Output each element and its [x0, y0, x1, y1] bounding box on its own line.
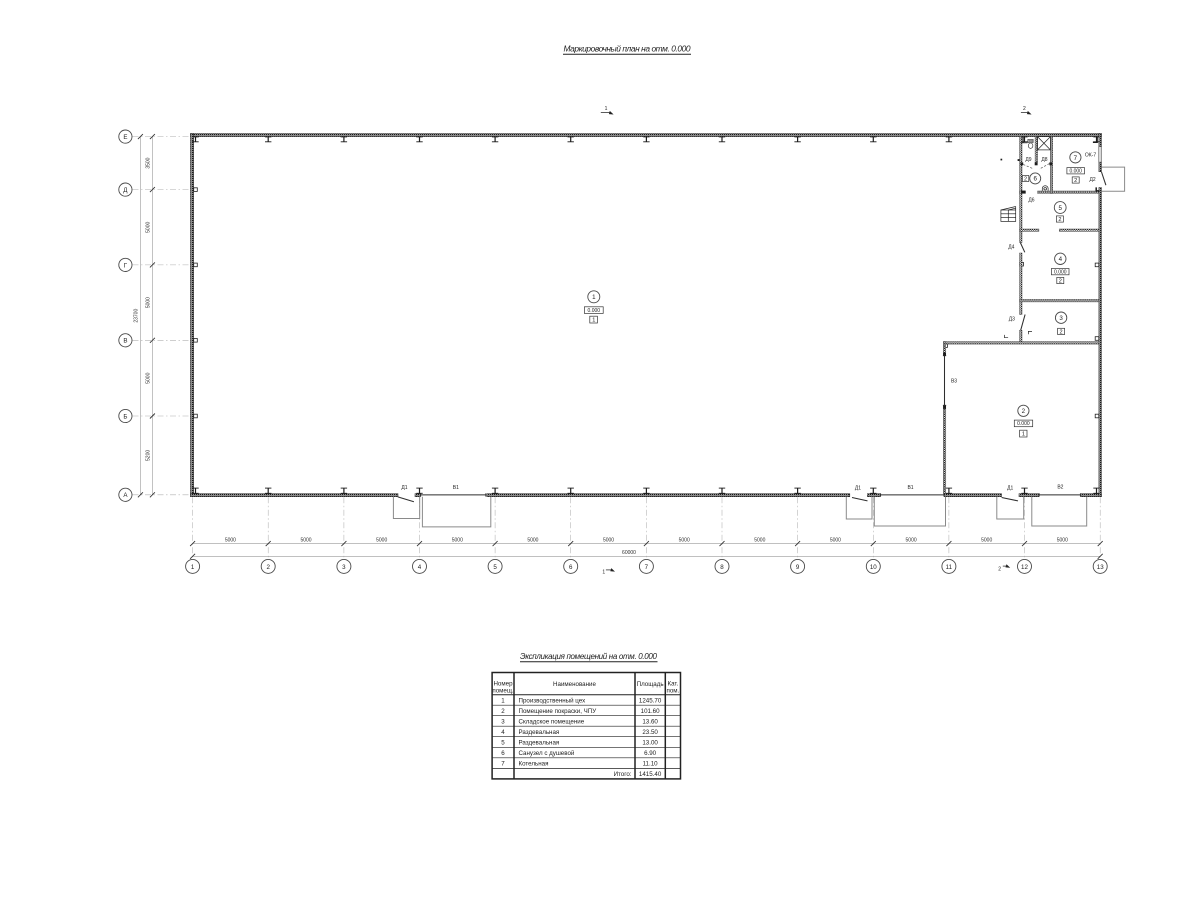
svg-text:2: 2	[1060, 329, 1063, 335]
svg-text:5000: 5000	[225, 537, 236, 543]
svg-text:7: 7	[1074, 155, 1078, 162]
svg-text:В1: В1	[453, 485, 459, 491]
svg-text:В1: В1	[907, 485, 913, 491]
svg-text:Номер: Номер	[493, 680, 513, 687]
svg-text:2: 2	[1058, 217, 1061, 223]
svg-text:101.60: 101.60	[641, 708, 660, 715]
svg-text:Помещение покраски, ЧПУ: Помещение покраски, ЧПУ	[519, 708, 597, 715]
svg-text:5200: 5200	[146, 450, 152, 461]
svg-text:Площадь: Площадь	[637, 681, 664, 688]
svg-text:5000: 5000	[603, 537, 614, 543]
svg-text:0.000: 0.000	[1054, 269, 1067, 275]
svg-text:2: 2	[1059, 278, 1062, 284]
svg-text:13.60: 13.60	[642, 718, 658, 725]
svg-text:8: 8	[720, 564, 724, 571]
svg-text:6: 6	[501, 750, 505, 757]
svg-text:1: 1	[592, 318, 595, 324]
svg-text:10: 10	[870, 564, 877, 571]
svg-text:2: 2	[998, 566, 1001, 572]
svg-text:5000: 5000	[452, 537, 463, 543]
svg-text:23700: 23700	[134, 309, 140, 323]
svg-text:помещ.: помещ.	[492, 687, 514, 694]
svg-text:1: 1	[501, 697, 505, 704]
svg-text:23.50: 23.50	[642, 729, 658, 736]
svg-text:11.10: 11.10	[643, 761, 659, 768]
svg-text:1245.70: 1245.70	[639, 697, 662, 704]
svg-text:5000: 5000	[146, 297, 152, 308]
svg-text:5000: 5000	[830, 537, 841, 543]
svg-text:В3: В3	[951, 378, 957, 384]
svg-text:Д1: Д1	[401, 485, 407, 491]
svg-text:2: 2	[1074, 178, 1077, 184]
svg-text:5000: 5000	[754, 537, 765, 543]
svg-text:1: 1	[1022, 432, 1025, 438]
svg-text:Е: Е	[123, 134, 127, 141]
svg-text:Д1: Д1	[1007, 485, 1013, 491]
svg-text:1415.40: 1415.40	[639, 771, 662, 778]
svg-text:3500: 3500	[146, 157, 152, 168]
svg-text:6: 6	[569, 564, 573, 571]
svg-text:7: 7	[645, 564, 649, 571]
svg-text:4: 4	[501, 729, 505, 736]
svg-text:Д9: Д9	[1025, 157, 1031, 163]
svg-text:5000: 5000	[1057, 537, 1068, 543]
svg-text:В: В	[123, 338, 127, 345]
svg-text:6.90: 6.90	[644, 750, 657, 757]
svg-text:Д2: Д2	[1090, 177, 1096, 183]
svg-text:5000: 5000	[376, 537, 387, 543]
svg-text:12: 12	[1021, 564, 1028, 571]
svg-text:Раздевальная: Раздевальная	[519, 729, 560, 736]
svg-text:Д8: Д8	[1041, 157, 1047, 163]
svg-text:9: 9	[796, 564, 800, 571]
svg-text:6: 6	[1033, 176, 1037, 183]
svg-text:Наименование: Наименование	[553, 681, 596, 688]
svg-text:5000: 5000	[300, 537, 311, 543]
svg-text:5: 5	[501, 739, 505, 746]
svg-text:Д4: Д4	[1008, 245, 1014, 251]
svg-text:60000: 60000	[622, 550, 636, 556]
svg-text:Маркировочный план на отм. 0.0: Маркировочный план на отм. 0.000	[564, 44, 691, 54]
svg-text:Б: Б	[123, 413, 127, 420]
svg-text:Складское помещение: Складское помещение	[519, 718, 585, 725]
svg-text:2: 2	[266, 564, 270, 571]
svg-text:13: 13	[1097, 564, 1104, 571]
svg-text:3: 3	[342, 564, 346, 571]
svg-text:2: 2	[501, 708, 505, 715]
svg-text:7: 7	[501, 761, 505, 768]
svg-text:5000: 5000	[679, 537, 690, 543]
svg-text:2: 2	[1024, 176, 1027, 182]
svg-text:0.000: 0.000	[588, 308, 601, 314]
svg-text:1: 1	[605, 106, 608, 112]
svg-text:5000: 5000	[527, 537, 538, 543]
svg-text:2: 2	[1022, 408, 1026, 415]
svg-text:Д1: Д1	[855, 485, 861, 491]
svg-text:4: 4	[418, 564, 422, 571]
svg-text:ОК-7: ОК-7	[1085, 153, 1096, 159]
svg-text:пом.: пом.	[667, 687, 680, 694]
svg-text:2: 2	[1023, 106, 1026, 112]
svg-text:5: 5	[493, 564, 497, 571]
svg-text:Д6: Д6	[1028, 198, 1034, 204]
svg-text:1: 1	[191, 564, 195, 571]
svg-text:Итого:: Итого:	[614, 771, 632, 778]
svg-text:Кат.: Кат.	[668, 680, 679, 687]
svg-text:4: 4	[1059, 256, 1063, 263]
svg-text:5000: 5000	[906, 537, 917, 543]
svg-text:5000: 5000	[981, 537, 992, 543]
svg-text:5000: 5000	[146, 372, 152, 383]
svg-text:1: 1	[592, 294, 596, 301]
svg-text:Д3: Д3	[1009, 317, 1015, 323]
svg-text:1: 1	[602, 570, 605, 576]
svg-text:Котельная: Котельная	[519, 761, 549, 768]
svg-text:Экспликация помещений на отм.: Экспликация помещений на отм. 0.000	[520, 652, 658, 661]
svg-text:13.00: 13.00	[642, 739, 658, 746]
svg-text:Раздевальная: Раздевальная	[519, 739, 560, 746]
svg-text:11: 11	[946, 564, 953, 571]
svg-text:В2: В2	[1057, 484, 1063, 490]
svg-text:5000: 5000	[146, 222, 152, 233]
svg-text:Производственный цех: Производственный цех	[519, 697, 587, 704]
svg-text:3: 3	[1059, 315, 1063, 322]
svg-text:3: 3	[501, 718, 505, 725]
svg-text:0.000: 0.000	[1069, 169, 1082, 175]
svg-text:0.000: 0.000	[1017, 421, 1030, 427]
svg-text:5: 5	[1058, 205, 1062, 212]
svg-text:Санузел с душевой: Санузел с душевой	[519, 750, 575, 757]
